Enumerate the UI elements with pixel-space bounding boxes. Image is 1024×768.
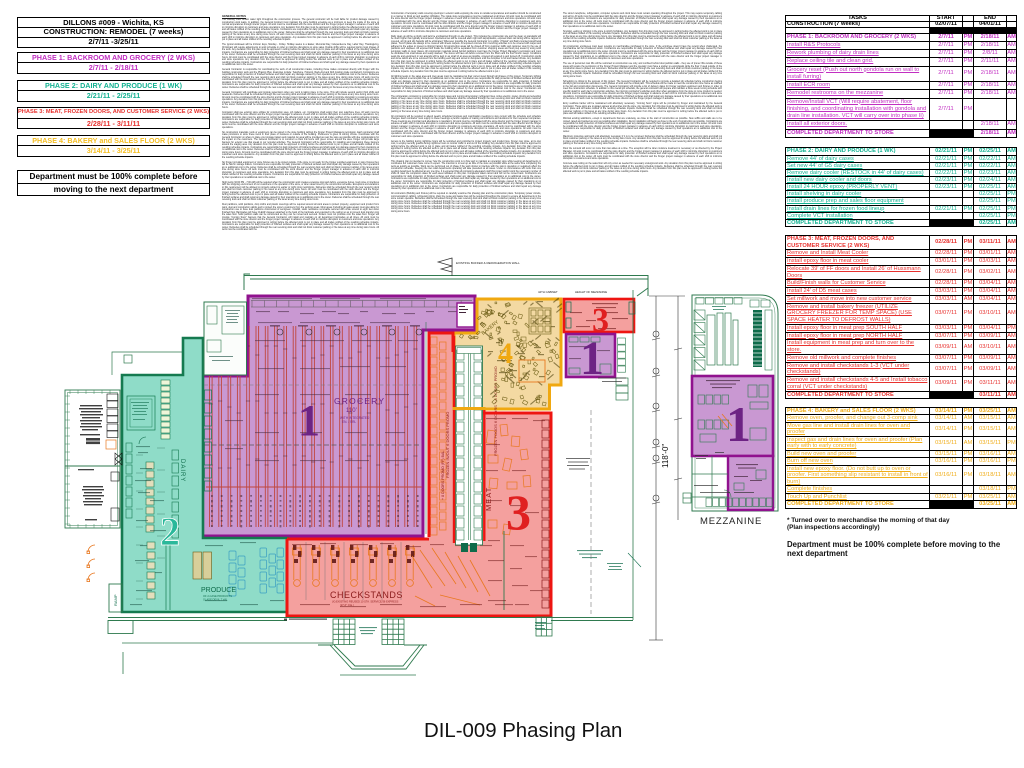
- svg-text:118'-0": 118'-0": [661, 444, 670, 468]
- svg-text:3: 3: [506, 484, 531, 540]
- svg-text:FROZEN FOODS 6 DOORS + 8 DOORS: FROZEN FOODS 6 DOORS + 8 DOORS PROMO: [493, 366, 498, 456]
- svg-text:GLADE DEVIL 7 VAL: GLADE DEVIL 7 VAL: [203, 598, 228, 602]
- svg-text:RAMP: RAMP: [113, 594, 118, 606]
- svg-text:(27-6" O.E.): (27-6" O.E.): [340, 603, 354, 607]
- svg-text:1: 1: [580, 332, 604, 385]
- svg-text:PRODUCE: PRODUCE: [201, 587, 236, 594]
- svg-text:110': 110': [346, 408, 357, 414]
- svg-text:+ 8 DOORS PROMO (FF) BAL: + 8 DOORS PROMO (FF) BAL: [441, 451, 445, 500]
- svg-text:2: 2: [160, 509, 180, 554]
- svg-text:EXISTING BUFFER & REFRIGERATIO: EXISTING BUFFER & REFRIGERATION WALL: [456, 261, 520, 265]
- svg-text:44TH CABINET: 44TH CABINET: [538, 290, 558, 294]
- svg-text:1: 1: [726, 396, 751, 452]
- svg-text:FROZEN IN/OUT 6 DOORS PROMO: FROZEN IN/OUT 6 DOORS PROMO: [445, 412, 450, 478]
- svg-text:DAIRY: DAIRY: [179, 459, 185, 482]
- svg-text:4: 4: [498, 337, 513, 370]
- svg-text:CHECKSTANDS: CHECKSTANDS: [330, 590, 403, 600]
- svg-text:(X) EXISTING REUSED 10 STA. SE: (X) EXISTING REUSED 10 STA. SERVICE/36 E…: [332, 600, 399, 604]
- svg-text:HEIGHT OF MEZZANINE: HEIGHT OF MEZZANINE: [575, 290, 607, 294]
- svg-text:MEZZANINE: MEZZANINE: [700, 516, 762, 527]
- svg-text:OF 2-CASE PRODUCTS: OF 2-CASE PRODUCTS: [203, 594, 232, 598]
- svg-text:EN. / SRL: EN. / SRL: [342, 420, 356, 424]
- svg-text:1: 1: [298, 396, 320, 445]
- svg-text:GROCERY: GROCERY: [334, 396, 385, 406]
